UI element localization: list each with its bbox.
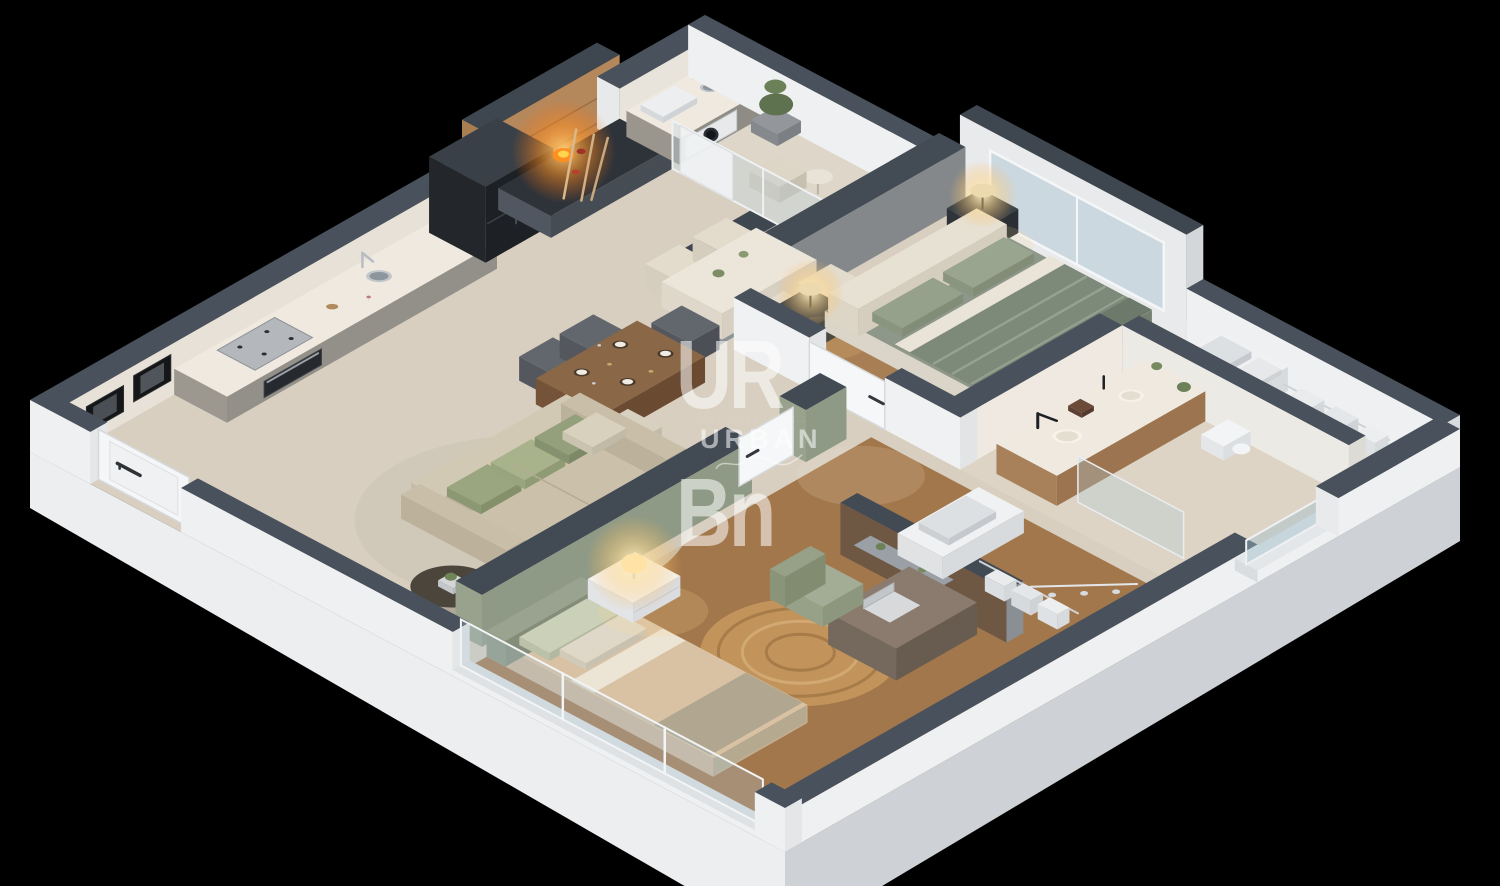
wine-glass xyxy=(366,296,370,299)
cutting-board xyxy=(326,304,338,310)
kitchen-sink-basin xyxy=(370,272,389,280)
cooktop-burner-1 xyxy=(237,346,242,349)
scene-layer xyxy=(30,15,1460,886)
cooktop-burner-2 xyxy=(264,330,269,333)
coffee-table-plant xyxy=(445,573,457,581)
plate-1 xyxy=(576,369,587,374)
floor-plan-render xyxy=(0,0,1500,886)
shelf-plant-1 xyxy=(876,543,886,550)
cooktop-burner-4 xyxy=(289,337,294,340)
water-glass-1 xyxy=(592,382,596,384)
shoe-1 xyxy=(1048,593,1056,598)
vanity-plant-2 xyxy=(1151,362,1162,370)
vanity-basin-left-inner xyxy=(1056,431,1078,441)
second-lamp-shade xyxy=(621,554,647,574)
toilet-seat xyxy=(1232,443,1250,454)
shoe-3 xyxy=(1112,589,1120,594)
balcony-plant-large-top xyxy=(764,80,786,94)
napkin-2 xyxy=(649,370,654,373)
washing-machine-drum xyxy=(706,130,716,139)
vanity-basin-right-inner xyxy=(1121,391,1140,400)
balcony-table xyxy=(803,169,833,184)
grill-flame-core xyxy=(558,151,569,158)
master-lamp-left-shade xyxy=(798,282,822,296)
grill-meat-2 xyxy=(572,170,580,175)
napkin-1 xyxy=(607,363,612,366)
cooktop-burner-3 xyxy=(262,352,267,355)
plate-4 xyxy=(660,351,671,356)
plate-2 xyxy=(615,342,626,347)
dining-table-vase-2 xyxy=(739,251,749,258)
balcony-plant-large xyxy=(759,93,793,115)
dining-table-vase-1 xyxy=(712,269,724,277)
grill-meat-1 xyxy=(577,149,586,155)
plate-3 xyxy=(622,379,633,384)
apartment-3d-floorplan-screenshot: UR · · · · · · · · · · · · URBAN Bn xyxy=(0,0,1500,886)
wall-suite-divider-lower xyxy=(960,408,977,470)
shoe-2 xyxy=(1080,591,1088,596)
water-glass-2 xyxy=(597,344,601,346)
vanity-plant-1 xyxy=(1177,382,1191,392)
master-lamp-right-shade xyxy=(971,184,995,198)
